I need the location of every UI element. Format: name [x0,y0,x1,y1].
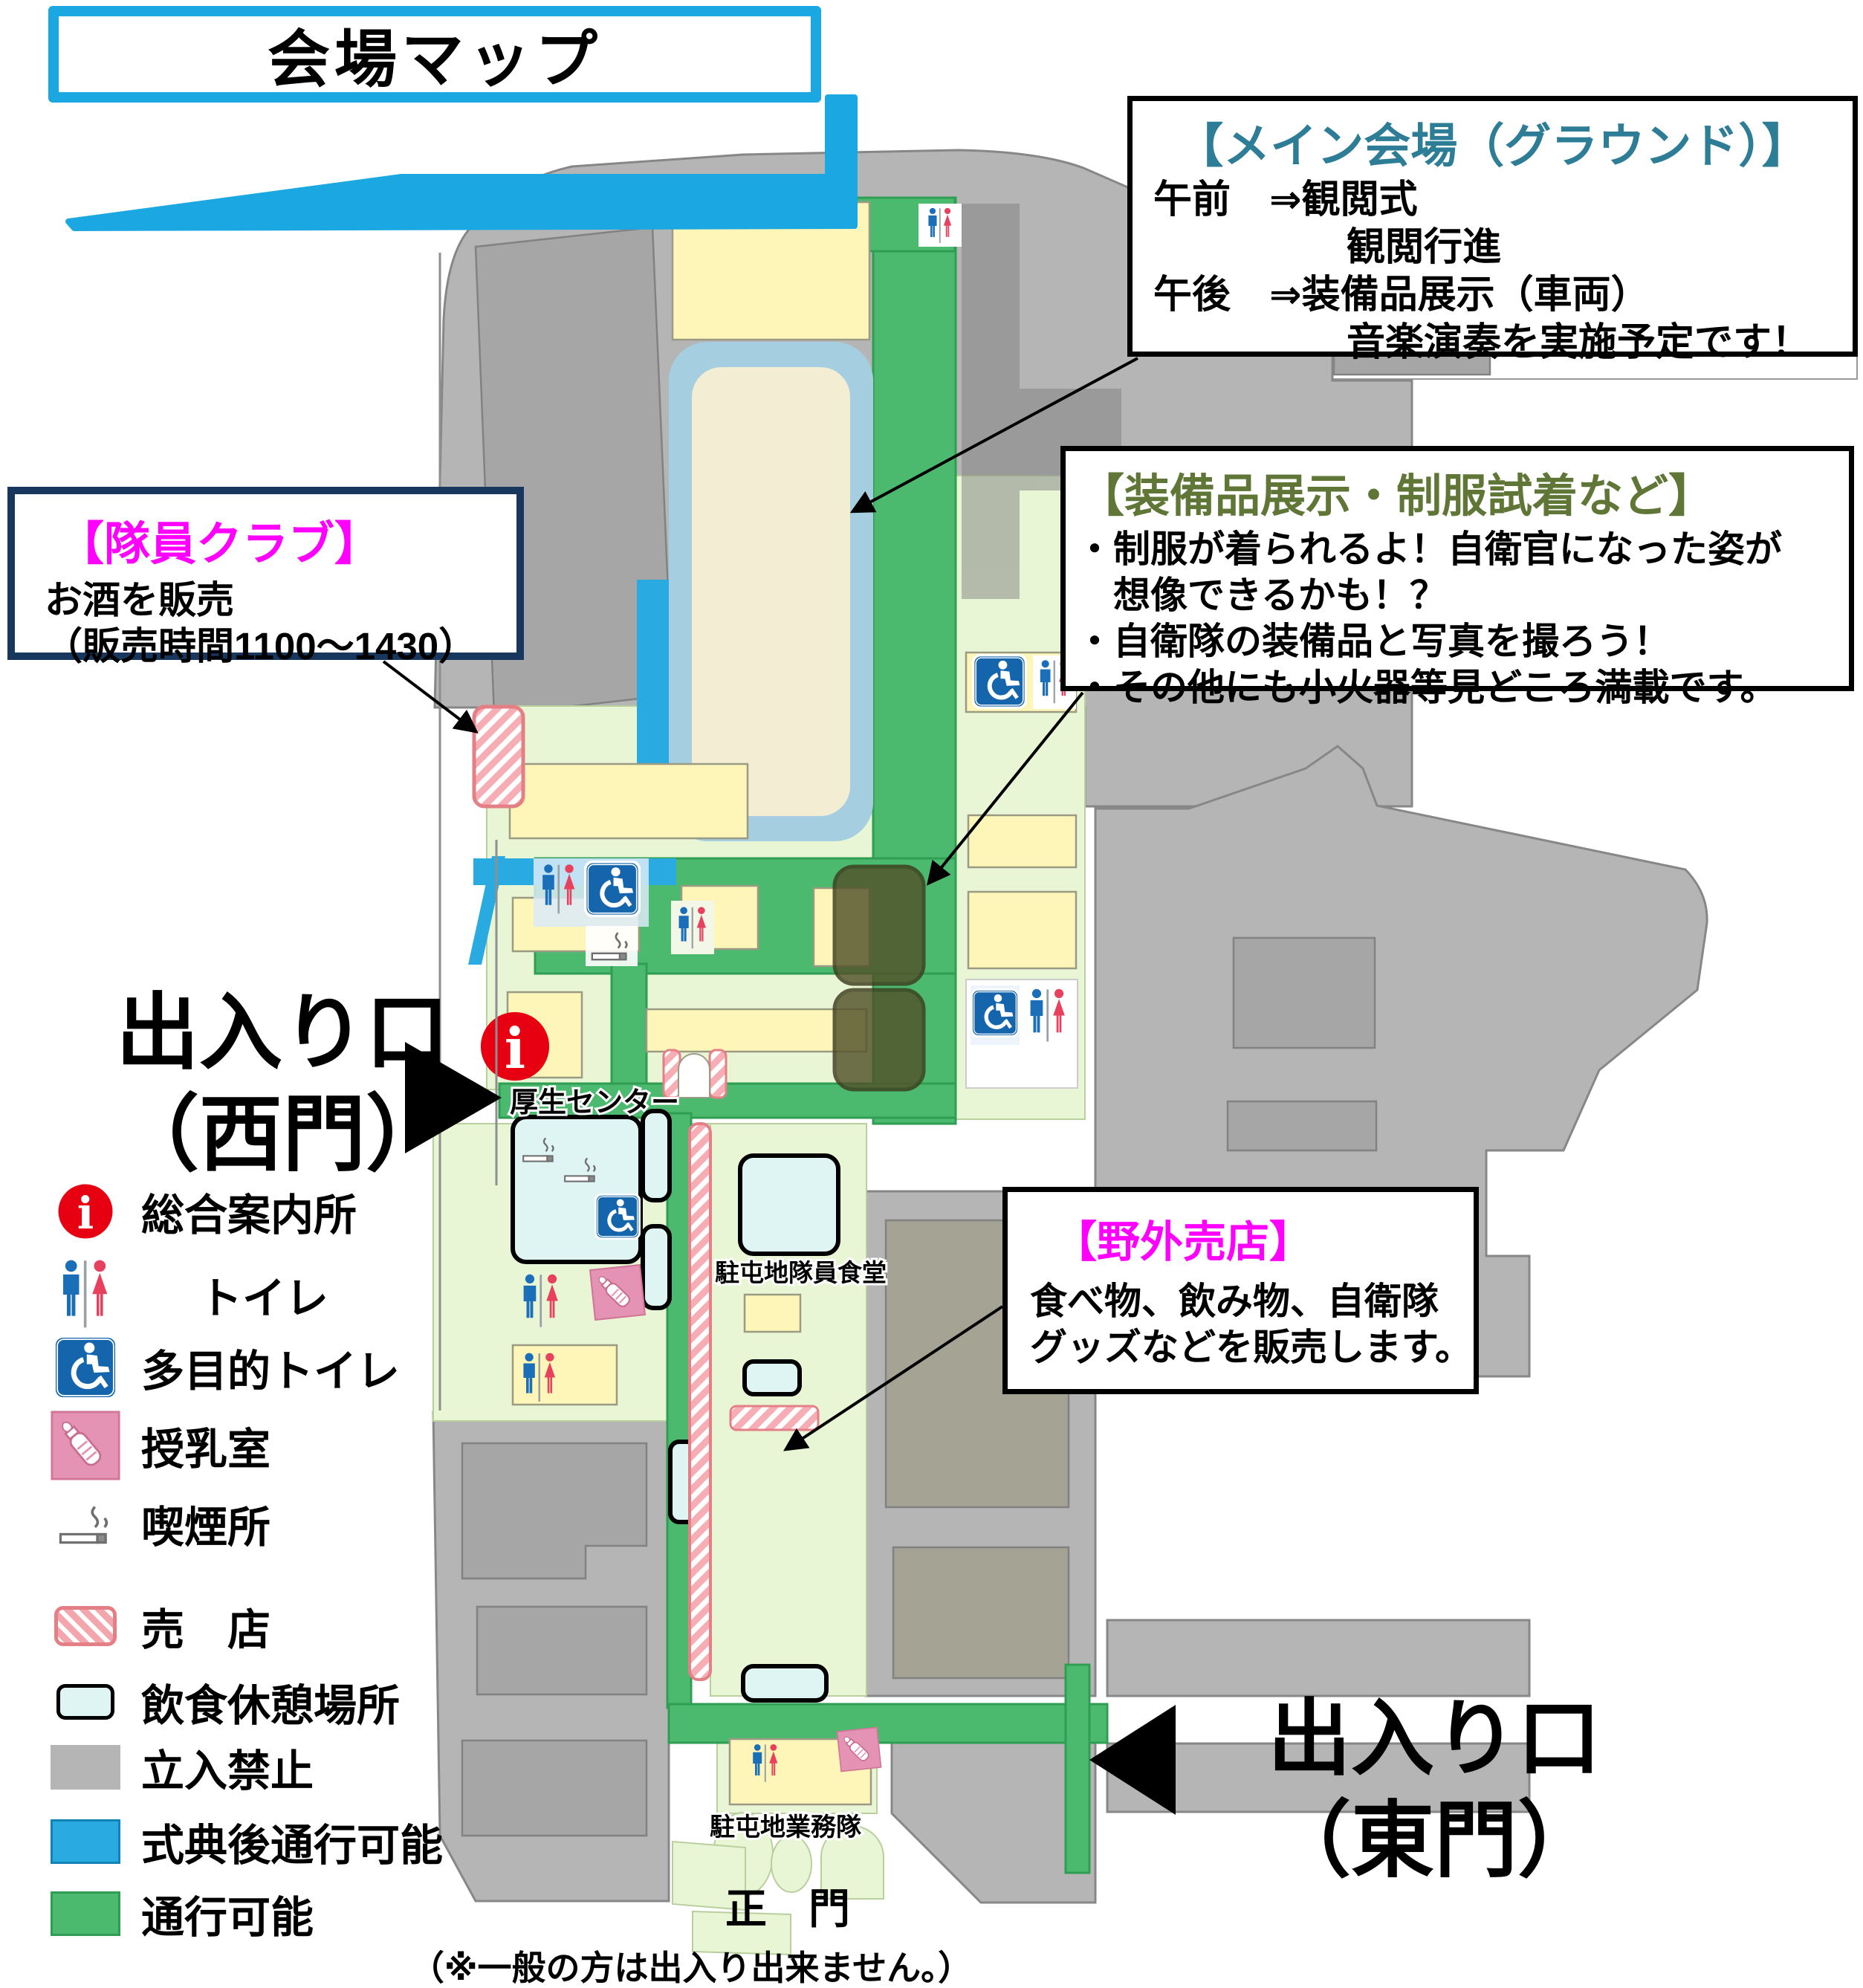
arch-shape [678,1054,710,1098]
equipment-display-zone [835,867,924,1089]
legend-item-toilet: トイレ [30,1257,328,1332]
legend-label: 総合案内所 [141,1180,357,1243]
legend-label: 立入禁止 [141,1736,314,1798]
legend-item-after-ceremony: 式典後通行可能 [30,1810,443,1873]
equipment-line: ・自衛隊の装備品と写真を撮ろう！ [1076,618,1849,664]
no-entry-swatch [30,1745,141,1790]
legend-item-no-entry: 立入禁止 [30,1736,314,1798]
equipment-display-box: 【装備品展示・制服試着など】 ・制服が着られるよ！自衛官になった姿が 想像できる… [1060,446,1854,691]
outdoor-shop-line: グッズなどを販売します。 [1030,1324,1474,1370]
accessible-toilet-icon [971,989,1018,1036]
venue-map-page: i [0,0,1863,1988]
welfare-center-label: 厚生センター [510,1087,679,1118]
legend-item-smoking-area: 喫煙所 [30,1492,270,1555]
legend-item-walkable: 通行可能 [30,1882,314,1945]
staff-club-line: お酒を販売 [45,577,516,624]
nursing-room-icon [590,1265,645,1320]
equipment-display-title: 【装備品展示・制服試着など】 [1079,459,1849,525]
west-gate-line1: 出入り口 [71,982,494,1084]
legend: 総合案内所 トイレ 多目的トイレ 授乳室 喫煙所 売 店 飲食休憩場所 立入禁止… [30,1174,505,1962]
main-venue-box: 【メイン会場（グラウンド）】 午前 ⇒観閲式 観閲行進 午後 ⇒装備品展示（車両… [1127,96,1858,357]
west-gate-label: 出入り口 （西門） [71,982,494,1185]
legend-label: 通行可能 [141,1882,314,1945]
east-gate-line1: 出入り口 [1211,1688,1657,1790]
legend-label: 売 店 [141,1595,270,1657]
accessible-toilet-icon [973,655,1026,708]
accessible-toilet-icon [586,862,640,916]
smoking-area-icon [30,1494,141,1553]
equipment-line: 想像できるかも！？ [1076,572,1849,618]
legend-label: 喫煙所 [141,1492,270,1555]
outdoor-shop-line: 食べ物、飲み物、自衛隊 [1030,1278,1474,1324]
east-gate-line2: （東門） [1211,1790,1657,1892]
info-icon [30,1183,141,1240]
nursing-room-icon [837,1727,881,1771]
staff-club-line: （販売時間1100～1430） [45,624,516,670]
nursing-room-icon [30,1411,141,1480]
legend-item-info: 総合案内所 [30,1180,357,1243]
staff-club-title: 【隊員クラブ】 [58,506,516,573]
legend-item-shop: 売 店 [30,1595,270,1657]
outdoor-shop-box: 【野外売店】 食べ物、飲み物、自衛隊 グッズなどを販売します。 [1002,1187,1479,1394]
page-title-box: 会場マップ [48,6,821,103]
shop-swatch [30,1606,141,1646]
base-service-unit-label: 駐屯地業務隊 [710,1813,861,1842]
main-venue-line: 午前 ⇒観閲式 [1153,176,1853,224]
accessible-toilet-icon [30,1335,141,1400]
after-ceremony-swatch [30,1819,141,1864]
dining-hall-label: 駐屯地隊員食堂 [715,1259,887,1286]
rest-area-swatch [30,1684,141,1720]
main-venue-line: 午後 ⇒装備品展示（車両） [1153,271,1853,319]
outdoor-shop-title: 【野外売店】 [1054,1207,1474,1269]
legend-item-rest-area: 飲食休憩場所 [30,1671,400,1733]
main-venue-line: 音楽演奏を実施予定です！ [1153,319,1853,366]
legend-label: 飲食休憩場所 [141,1671,400,1733]
legend-label: 式典後通行可能 [141,1810,443,1873]
main-venue-line: 観閲行進 [1153,224,1853,271]
legend-item-nursing-room: 授乳室 [30,1411,270,1480]
main-gate-label: 正 門 [654,1876,921,1936]
legend-item-accessible-toilet: 多目的トイレ [30,1335,400,1400]
equipment-line: ・その他にも小火器等見どころ満載です。 [1076,664,1849,710]
page-title: 会場マップ [268,10,602,100]
toilet-icon [30,1257,141,1332]
equipment-line: ・制服が着られるよ！自衛官になった姿が [1076,526,1849,572]
walkable-swatch [30,1891,141,1936]
west-gate-line2: （西門） [71,1084,494,1186]
legend-label: 授乳室 [141,1414,270,1477]
east-gate-label: 出入り口 （東門） [1211,1688,1657,1891]
main-venue-title: 【メイン会場（グラウンド）】 [1133,109,1853,176]
main-ground-field [692,367,850,816]
staff-club-box: 【隊員クラブ】 お酒を販売 （販売時間1100～1430） [7,487,524,660]
legend-label: 多目的トイレ [141,1336,400,1399]
legend-label: トイレ [199,1263,328,1326]
accessible-toilet-icon [595,1194,640,1239]
